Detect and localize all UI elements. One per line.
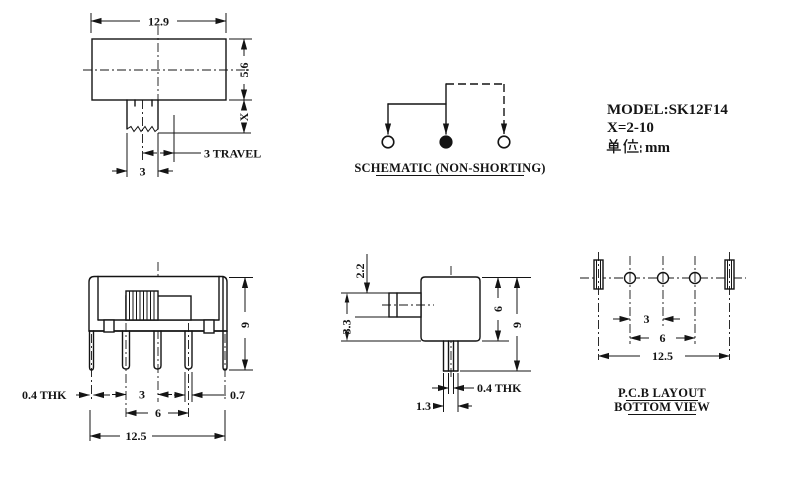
x-range: X=2-10 bbox=[607, 120, 654, 136]
dim-slot-span: 12.5 bbox=[652, 349, 673, 363]
dim-handle-height: X bbox=[237, 112, 251, 121]
flange-notch-left bbox=[104, 320, 114, 332]
schematic-terminal-common bbox=[440, 136, 452, 148]
dim-body-width: 12.9 bbox=[148, 15, 169, 29]
dim-body-height: 5.6 bbox=[237, 63, 251, 78]
dim-pin-bend-width: 1.3 bbox=[416, 399, 431, 413]
top-view-drawing: 12.9 5.6 X 3 TRAVEL 3 bbox=[83, 13, 261, 179]
title-block: MODEL:SK12F14 X=2-10 mm bbox=[607, 102, 728, 156]
pcb-caption-line2: BOTTOM VIEW bbox=[614, 400, 710, 414]
dim-pin-pitch: 3 bbox=[139, 388, 145, 402]
schematic-caption: SCHEMATIC (NON-SHORTING) bbox=[354, 161, 545, 175]
dim-tab-thickness: 0.4 THK bbox=[22, 388, 67, 402]
switch-body-side-view bbox=[421, 277, 480, 341]
dim-hole-pitch: 3 bbox=[644, 312, 650, 326]
datasheet-page: 12.9 5.6 X 3 TRAVEL 3 bbox=[0, 0, 800, 480]
pin-2 bbox=[154, 331, 161, 369]
dim-travel: 3 TRAVEL bbox=[204, 147, 261, 161]
unit-label-cjk bbox=[607, 140, 640, 153]
dim-side-height: 9 bbox=[510, 322, 524, 328]
model-number: MODEL:SK12F14 bbox=[607, 102, 728, 118]
dim-pin-thickness: 0.4 THK bbox=[477, 381, 522, 395]
dim-pin-span: 6 bbox=[155, 406, 161, 420]
dim-pin-width: 0.7 bbox=[230, 388, 245, 402]
dim-overall-width: 12.5 bbox=[126, 429, 147, 443]
unit-value: mm bbox=[645, 140, 670, 156]
dim-hole-span: 6 bbox=[660, 331, 666, 345]
schematic-diagram: SCHEMATIC (NON-SHORTING) bbox=[354, 84, 545, 176]
schematic-terminal-1 bbox=[382, 136, 394, 148]
dim-handle-width: 3 bbox=[140, 165, 146, 179]
technical-drawing-canvas: 12.9 5.6 X 3 TRAVEL 3 bbox=[0, 0, 800, 480]
side-view-drawing: 2.2 3.3 6 9 0.4 THK 1.3 bbox=[340, 254, 532, 413]
front-view-drawing: 9 0.4 THK 3 0.7 6 12.5 bbox=[22, 262, 253, 443]
pcb-caption-line1: P.C.B LAYOUT bbox=[618, 386, 706, 400]
dim-front-height: 9 bbox=[238, 322, 252, 328]
flange-notch-right bbox=[204, 320, 214, 333]
dim-body-depth: 6 bbox=[491, 306, 505, 312]
switch-body-top-view bbox=[92, 39, 226, 100]
pcb-layout-drawing: 3 6 12.5 P.C.B LAYOUT BOTTOM VIEW bbox=[580, 252, 746, 415]
slider-knob-front bbox=[126, 291, 158, 320]
schematic-terminal-3 bbox=[498, 136, 510, 148]
dim-knob-thickness: 2.2 bbox=[353, 264, 367, 279]
